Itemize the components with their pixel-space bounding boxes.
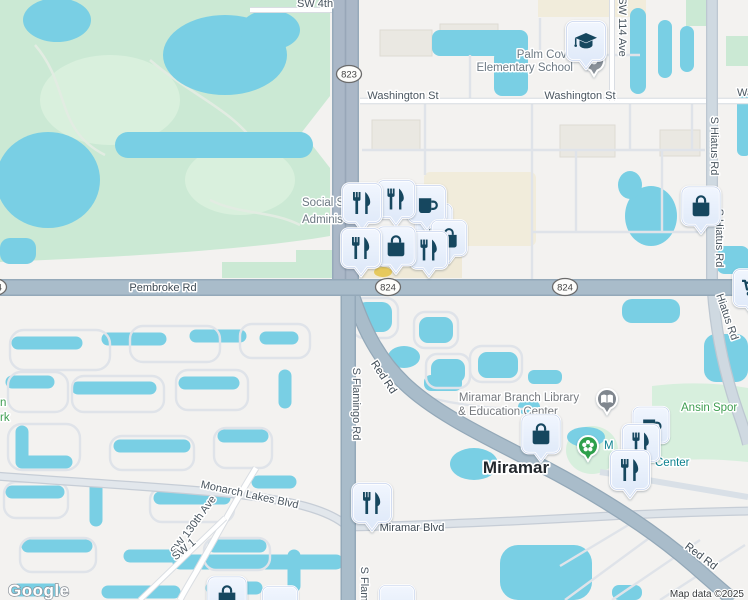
- partial-pin[interactable]: [379, 585, 414, 600]
- street-label-sw-114-ave: SW 114 Ave: [616, 0, 628, 57]
- poi-label-ansin[interactable]: Ansin Spor: [681, 402, 737, 414]
- street-label-washington-a: Washington St: [367, 90, 438, 102]
- map-attribution: Map data ©2025: [670, 589, 745, 600]
- street-label-sw-4th: SW 4th: [297, 0, 333, 10]
- poi-label-center-m[interactable]: M: [604, 440, 614, 452]
- route-shield-824-b: 824: [553, 279, 578, 296]
- street-label-s-flamingo: S Flamingo Rd: [350, 368, 362, 441]
- street-label-s-flamingo-edge: S Flam: [358, 567, 370, 600]
- partial-pin[interactable]: [262, 586, 297, 600]
- svg-text:823: 823: [341, 69, 357, 80]
- poi-label-park-edge-2[interactable]: rk: [0, 412, 10, 424]
- poi-label-library-1[interactable]: Miramar Branch Library: [459, 392, 579, 404]
- street-label-s-hiatus-a: S Hiatus Rd: [708, 117, 720, 176]
- google-logo[interactable]: Google: [8, 581, 70, 600]
- street-label-pembroke-rd: Pembroke Rd: [129, 282, 196, 294]
- poi-label-center[interactable]: Center: [655, 457, 690, 469]
- svg-text:824: 824: [0, 282, 2, 293]
- map-canvas[interactable]: SW 4th Washington St Washington St Was S…: [0, 0, 748, 600]
- svg-text:824: 824: [557, 282, 573, 293]
- street-label-washington-edge: Was: [737, 87, 748, 99]
- poi-label-social-security-2[interactable]: Adminis: [302, 214, 343, 226]
- shopping-bag-pin[interactable]: [208, 577, 246, 600]
- svg-text:824: 824: [380, 282, 396, 293]
- route-shield-823: 823: [337, 66, 362, 83]
- poi-label-park-edge-1[interactable]: n: [0, 397, 6, 409]
- street-label-miramar-blvd: Miramar Blvd: [380, 522, 445, 534]
- poi-label-palm-cove-2[interactable]: Elementary School: [476, 62, 573, 74]
- route-shield-824-a: 824: [376, 279, 401, 296]
- street-label-washington-b: Washington St: [544, 90, 615, 102]
- poi-label-palm-cove-1[interactable]: Palm Cove: [517, 49, 573, 61]
